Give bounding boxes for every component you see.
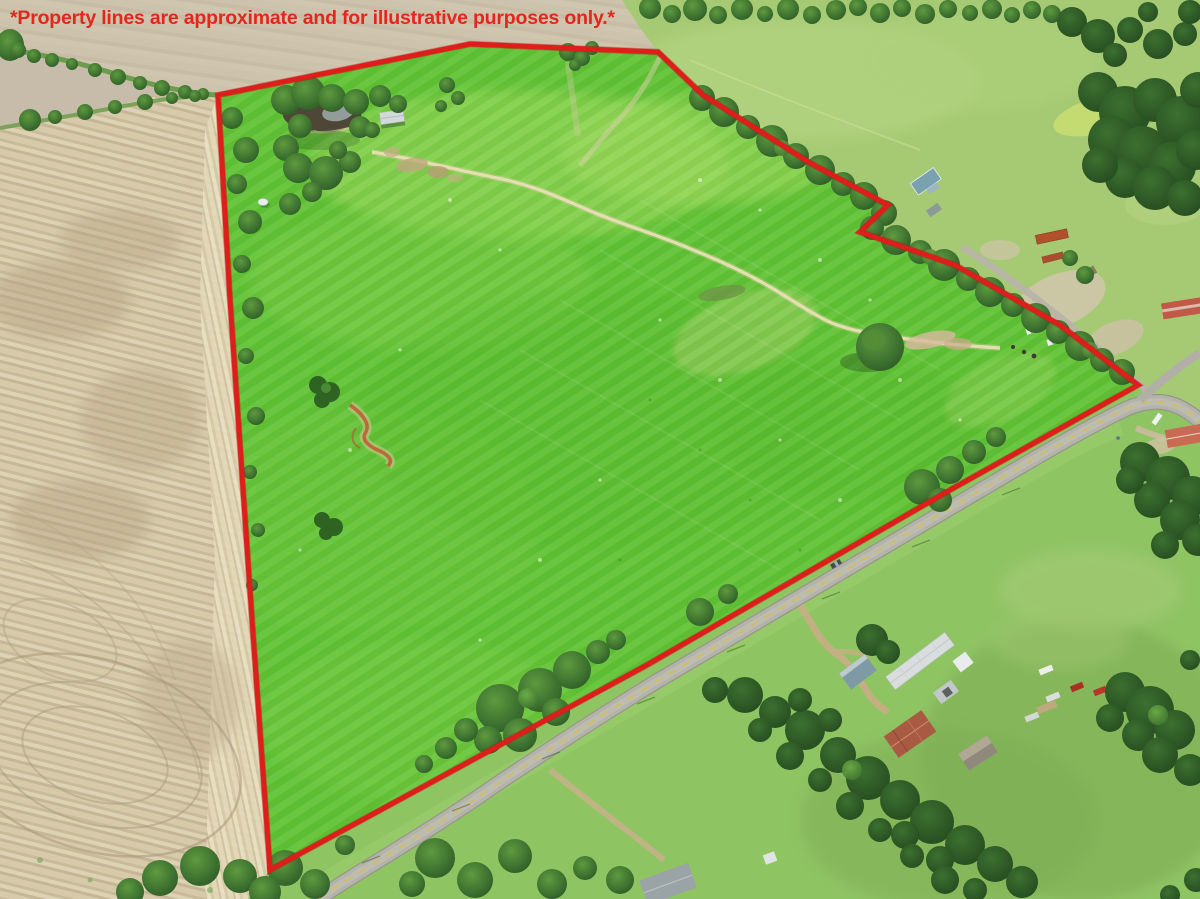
cow — [1011, 345, 1015, 349]
disclaimer-text: *Property lines are approximate and for … — [10, 7, 615, 30]
aerial-photo — [0, 0, 1200, 899]
cow — [1032, 354, 1037, 359]
screenshot-root: *Property lines are approximate and for … — [0, 0, 1200, 899]
cow — [1022, 350, 1026, 354]
